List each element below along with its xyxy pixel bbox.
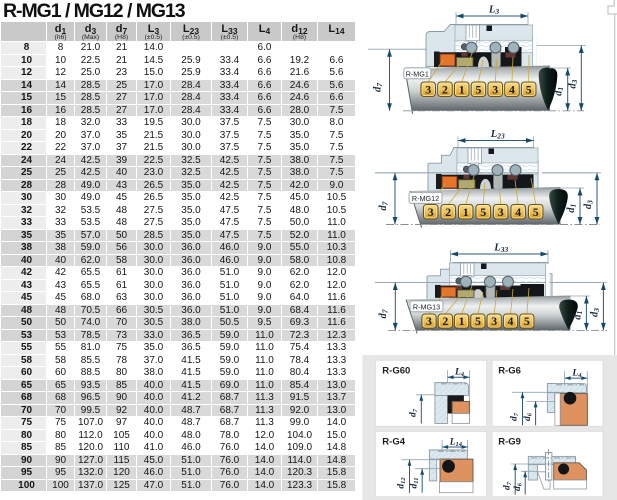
svg-text:3: 3	[492, 82, 498, 96]
svg-text:d7: d7	[378, 201, 390, 210]
svg-text:3: 3	[498, 205, 504, 219]
svg-text:5: 5	[533, 205, 539, 219]
svg-text:2: 2	[442, 82, 448, 96]
svg-text:R-G6: R-G6	[498, 366, 521, 377]
svg-text:R-G60: R-G60	[382, 366, 410, 377]
svg-text:5: 5	[475, 82, 481, 96]
svg-text:L3: L3	[488, 5, 499, 17]
svg-text:d1: d1	[572, 311, 584, 320]
svg-text:2: 2	[442, 314, 448, 328]
svg-text:3: 3	[425, 82, 431, 96]
svg-text:1: 1	[459, 82, 465, 96]
svg-text:R-MG12: R-MG12	[412, 194, 439, 203]
svg-text:d7: d7	[378, 309, 390, 318]
svg-text:R-MG1: R-MG1	[406, 69, 429, 78]
svg-text:d3: d3	[589, 308, 601, 317]
svg-text:1: 1	[459, 314, 465, 328]
svg-text:5: 5	[524, 314, 530, 328]
svg-text:5: 5	[480, 205, 486, 219]
svg-text:3: 3	[426, 314, 432, 328]
svg-text:5: 5	[526, 82, 532, 96]
svg-text:3: 3	[428, 205, 434, 219]
svg-text:d3: d3	[583, 200, 595, 209]
svg-text:5: 5	[475, 314, 481, 328]
svg-text:d1: d1	[566, 204, 578, 213]
svg-text:1: 1	[463, 205, 469, 219]
svg-text:R-G9: R-G9	[498, 437, 521, 448]
svg-text:R-MG13: R-MG13	[413, 302, 440, 311]
svg-text:4: 4	[509, 82, 515, 96]
svg-text:3: 3	[491, 314, 497, 328]
svg-text:L33: L33	[493, 243, 508, 255]
svg-text:L23: L23	[490, 129, 505, 141]
svg-text:d7: d7	[372, 83, 384, 92]
svg-text:2: 2	[445, 205, 451, 219]
svg-text:4: 4	[515, 205, 521, 219]
svg-text:d3: d3	[567, 79, 579, 88]
svg-text:d1: d1	[554, 87, 566, 96]
svg-text:R-G4: R-G4	[382, 436, 405, 447]
svg-text:4: 4	[508, 314, 514, 328]
